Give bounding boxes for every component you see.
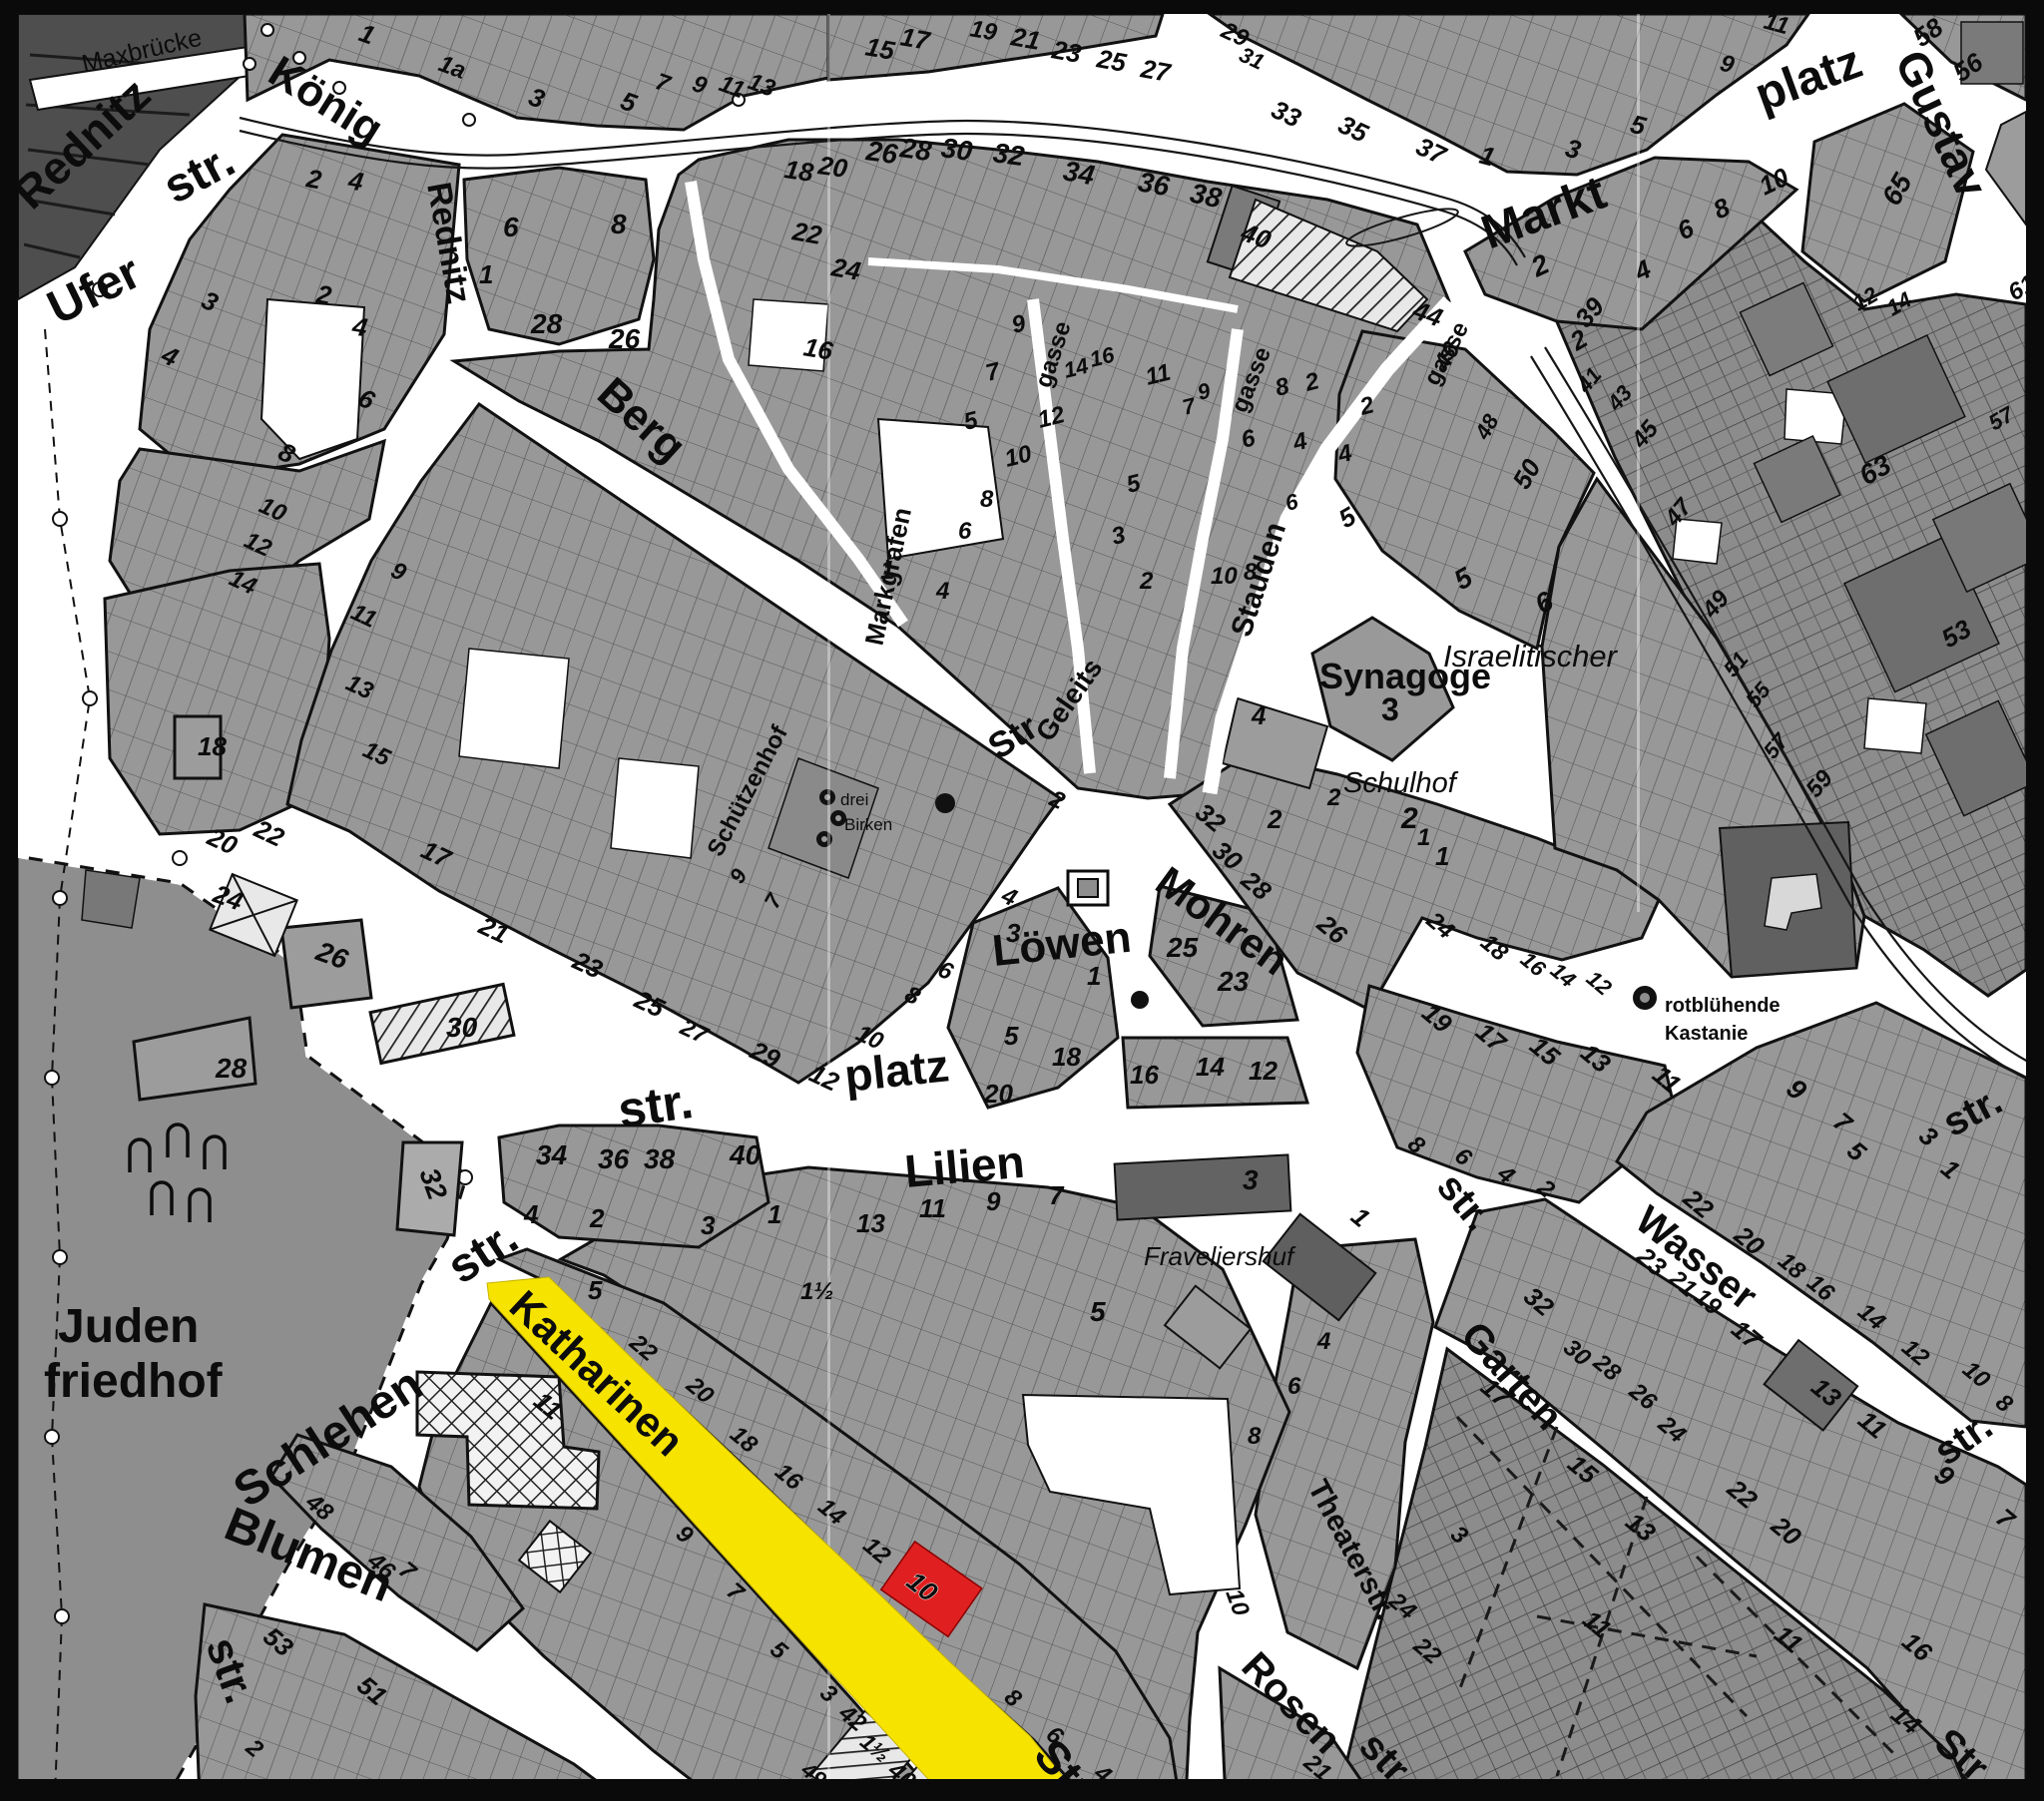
- svg-text:10: 10: [1211, 563, 1238, 590]
- svg-text:3: 3: [701, 1210, 716, 1240]
- svg-text:16: 16: [1130, 1060, 1159, 1090]
- svg-text:40: 40: [729, 1139, 762, 1170]
- svg-text:25: 25: [1166, 932, 1199, 963]
- svg-text:38: 38: [644, 1143, 676, 1174]
- svg-text:20: 20: [815, 150, 849, 184]
- svg-text:19: 19: [968, 15, 1000, 46]
- svg-text:Kastanie: Kastanie: [1665, 1023, 1748, 1045]
- svg-text:20: 20: [983, 1079, 1013, 1109]
- svg-text:3: 3: [1381, 691, 1399, 727]
- svg-text:30: 30: [939, 132, 975, 167]
- svg-text:4: 4: [1316, 1328, 1330, 1355]
- svg-text:Birken: Birken: [844, 815, 892, 834]
- svg-text:30: 30: [446, 1012, 478, 1043]
- svg-text:1: 1: [1435, 841, 1449, 871]
- svg-text:5: 5: [588, 1275, 603, 1305]
- svg-text:9: 9: [986, 1186, 1001, 1216]
- svg-text:5: 5: [1004, 1021, 1019, 1051]
- svg-text:1: 1: [880, 555, 894, 585]
- svg-text:Lilien: Lilien: [902, 1135, 1026, 1197]
- svg-text:3: 3: [1243, 1164, 1259, 1195]
- svg-text:Juden: Juden: [58, 1300, 199, 1353]
- svg-text:32: 32: [991, 137, 1027, 172]
- svg-text:1½: 1½: [800, 1278, 833, 1305]
- svg-text:26: 26: [863, 135, 900, 170]
- svg-text:18: 18: [782, 154, 815, 188]
- svg-text:28: 28: [215, 1053, 248, 1084]
- svg-text:23: 23: [1217, 966, 1250, 997]
- svg-text:1: 1: [1087, 961, 1101, 991]
- svg-text:25: 25: [1094, 43, 1129, 78]
- svg-text:24: 24: [828, 251, 863, 286]
- svg-text:34: 34: [536, 1139, 568, 1170]
- svg-text:4: 4: [1251, 700, 1267, 730]
- svg-text:Schulhof: Schulhof: [1343, 767, 1459, 799]
- svg-text:8: 8: [1244, 559, 1258, 586]
- svg-text:8: 8: [611, 209, 627, 239]
- svg-text:friedhof: friedhof: [44, 1355, 224, 1408]
- svg-text:3: 3: [1006, 918, 1021, 948]
- svg-text:1: 1: [1417, 824, 1430, 851]
- svg-text:12: 12: [1249, 1056, 1277, 1086]
- svg-text:str.: str.: [615, 1073, 697, 1138]
- svg-text:1: 1: [479, 259, 493, 289]
- svg-text:28: 28: [897, 132, 934, 167]
- svg-text:2: 2: [1267, 804, 1282, 834]
- svg-text:22: 22: [789, 216, 824, 250]
- svg-text:platz: platz: [842, 1039, 952, 1102]
- svg-text:16: 16: [801, 331, 835, 366]
- svg-text:2: 2: [1139, 568, 1154, 595]
- svg-text:23: 23: [1049, 34, 1084, 69]
- svg-text:8: 8: [1248, 1423, 1262, 1450]
- svg-text:rotblühende: rotblühende: [1665, 995, 1781, 1017]
- svg-text:36: 36: [598, 1143, 630, 1174]
- svg-text:18: 18: [198, 731, 227, 761]
- svg-text:8: 8: [980, 486, 994, 513]
- svg-text:7: 7: [1049, 1180, 1065, 1210]
- svg-text:2: 2: [1400, 802, 1418, 835]
- svg-text:drei: drei: [840, 790, 868, 809]
- svg-text:36: 36: [1136, 166, 1172, 202]
- svg-text:4: 4: [523, 1199, 539, 1229]
- svg-text:4: 4: [935, 578, 949, 605]
- svg-text:34: 34: [1061, 155, 1097, 191]
- svg-text:Fraveliershuf: Fraveliershuf: [1144, 1241, 1296, 1271]
- svg-text:6: 6: [503, 212, 519, 242]
- svg-text:11: 11: [919, 1193, 946, 1223]
- svg-text:5: 5: [1090, 1296, 1106, 1327]
- svg-text:15: 15: [863, 31, 897, 66]
- svg-text:21: 21: [1008, 21, 1043, 56]
- svg-text:26: 26: [608, 323, 641, 354]
- svg-text:14: 14: [1196, 1052, 1225, 1082]
- svg-text:Israelitischer: Israelitischer: [1443, 639, 1619, 674]
- svg-text:28: 28: [530, 308, 563, 339]
- svg-text:2: 2: [1326, 784, 1341, 811]
- svg-text:1: 1: [767, 1199, 781, 1229]
- svg-text:13: 13: [856, 1208, 885, 1238]
- svg-text:6: 6: [958, 518, 972, 545]
- svg-text:2: 2: [589, 1203, 605, 1233]
- svg-text:6: 6: [1287, 1373, 1301, 1400]
- svg-text:18: 18: [1052, 1042, 1081, 1072]
